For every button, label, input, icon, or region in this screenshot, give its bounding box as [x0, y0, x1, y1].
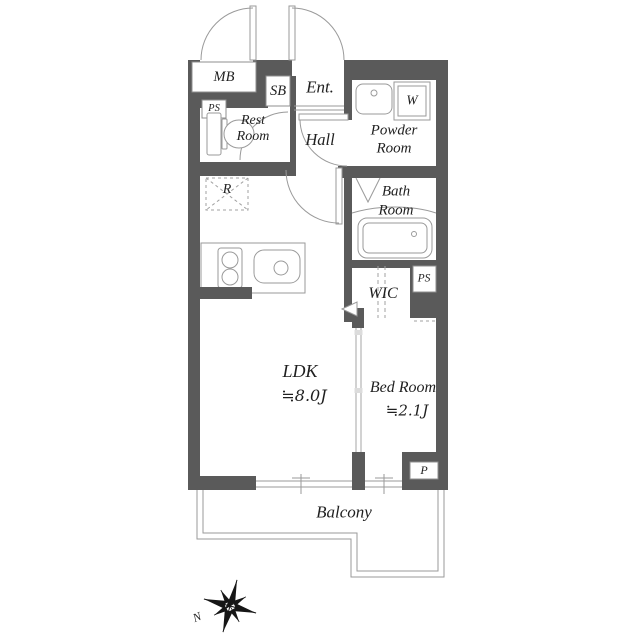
ps-right-label: PS — [418, 273, 431, 285]
bedroom-label: Bed Room — [370, 380, 436, 396]
ps-top-label: PS — [208, 104, 220, 115]
washbasin-icon — [356, 84, 392, 114]
powder-room-label-2: Room — [377, 142, 412, 157]
window-left — [256, 481, 352, 487]
p-label: P — [420, 464, 427, 476]
stove-icon — [218, 248, 242, 288]
mb-door-arc — [201, 6, 256, 60]
bedroom-size-label: ≒2.1J — [386, 404, 428, 419]
rest-room-label-2: Room — [237, 130, 270, 144]
ldk-label: LDK — [282, 362, 317, 380]
entrance-label: Ent. — [306, 79, 334, 96]
wic-label: WIC — [368, 286, 397, 302]
powder-room-label-1: Powder — [371, 124, 418, 139]
balcony-windows — [256, 474, 402, 494]
bath-folding-door — [356, 178, 380, 202]
kitchen-stub-wall — [200, 287, 252, 299]
compass-icon — [197, 573, 263, 639]
hall-label: Hall — [305, 132, 334, 149]
sb-label: SB — [270, 84, 286, 99]
ldk-size-label: ≒8.0J — [281, 388, 326, 404]
fridge-label: R — [223, 183, 232, 197]
bath-room-label-2: Room — [379, 204, 414, 219]
floor-plan: MB PS SB Ent. Rest Room Hall Powder Room… — [0, 0, 640, 640]
rest-room-label-1: Rest — [241, 114, 265, 128]
entrance-door-arc — [289, 6, 344, 60]
mb-label: MB — [214, 70, 235, 85]
hall-ldk-door-arc — [286, 168, 342, 224]
kitchen-sink-icon — [254, 250, 300, 283]
bath-room-label-1: Bath — [382, 185, 410, 200]
washer-label: W — [406, 93, 417, 107]
balcony-label: Balcony — [316, 504, 372, 521]
entrance-step — [294, 106, 344, 110]
partition-slider — [355, 328, 363, 452]
